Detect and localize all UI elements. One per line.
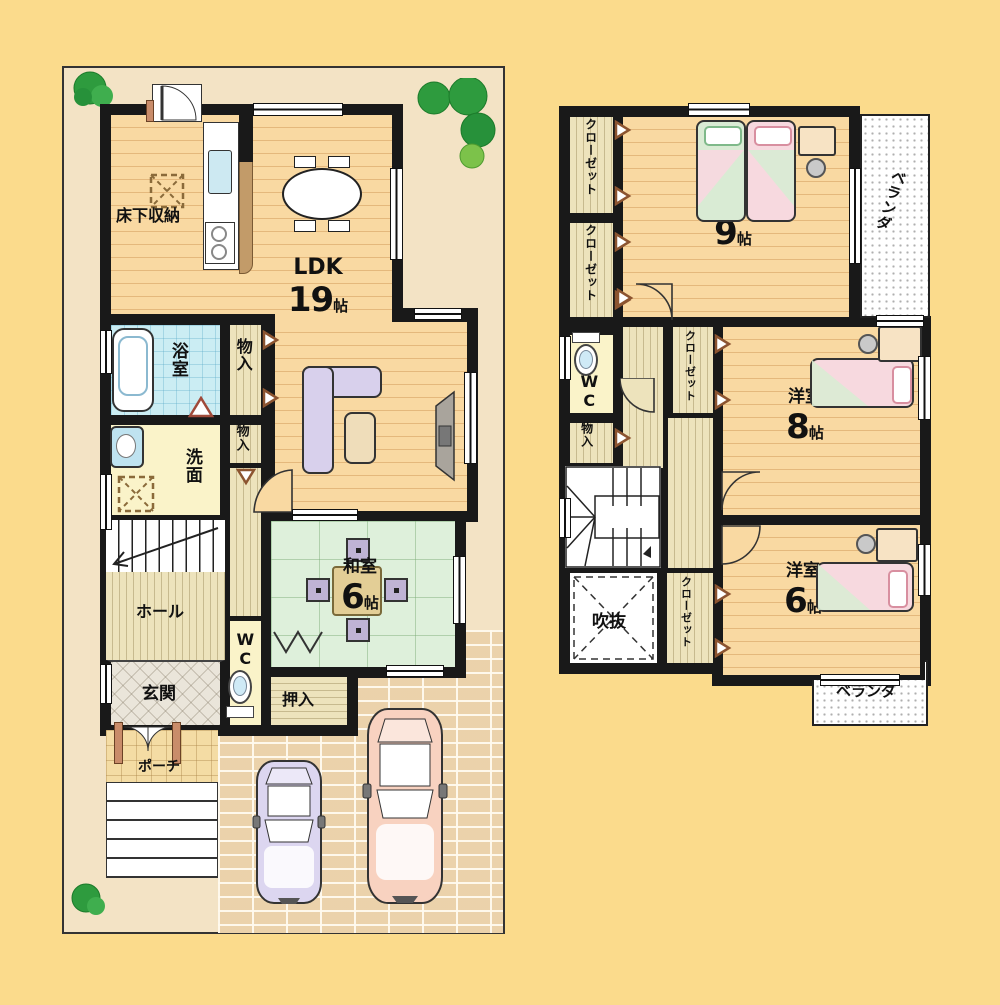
- label-closet-c: クローゼット: [684, 330, 696, 402]
- desk-chair: [806, 158, 826, 178]
- label-storage-2f: 物入: [580, 422, 593, 448]
- label-bath: 浴室: [168, 342, 186, 378]
- floor-storage-hatch-icon: [148, 172, 186, 210]
- pillow: [892, 366, 912, 404]
- window: [100, 664, 112, 704]
- desk: [878, 326, 922, 362]
- dining-chair: [294, 220, 316, 232]
- coffee-table: [344, 412, 376, 464]
- label-hall: ホール: [136, 604, 184, 621]
- pillow: [754, 126, 792, 146]
- bedroom9-door-icon: [634, 282, 674, 322]
- window: [559, 498, 571, 538]
- folding-door-icon: [614, 120, 632, 140]
- tree-cluster-top-right-icon: [412, 78, 508, 170]
- window: [453, 556, 466, 624]
- floorplan-canvas: 床下収納 LDK 19帖 浴室 物入 物入 洗面 ホール 玄関 ポーチ WC: [0, 0, 1000, 1005]
- porch-door-icon: [123, 726, 173, 754]
- window: [100, 330, 112, 374]
- window: [292, 509, 358, 521]
- dining-table: [282, 168, 362, 220]
- folding-door-icon: [262, 388, 280, 408]
- ldk-door-arc-icon: [252, 468, 294, 514]
- porch-post-right: [172, 722, 181, 764]
- floor-cushion: [346, 618, 370, 642]
- pillow: [704, 126, 742, 146]
- desk: [798, 126, 836, 156]
- label-ldk: LDK 19帖: [268, 255, 368, 320]
- car-large: [362, 706, 448, 906]
- window: [414, 308, 462, 320]
- window: [918, 544, 931, 596]
- label-storage-a: 物入: [234, 338, 251, 372]
- bedroom6-door-icon: [720, 524, 762, 566]
- dining-chair: [294, 156, 316, 168]
- label-closet-d: クローゼット: [680, 576, 692, 648]
- folding-door-icon: [714, 638, 732, 658]
- bathtub-inner: [118, 336, 148, 396]
- window: [688, 103, 750, 116]
- window: [918, 356, 931, 420]
- window: [386, 665, 444, 677]
- folding-door-icon: [714, 390, 732, 410]
- blanket-fold-icon: [812, 360, 882, 406]
- window: [390, 168, 403, 260]
- stairs-2f-icon: [565, 466, 661, 568]
- door-jamb: [146, 100, 154, 122]
- folding-door-icon: [714, 584, 732, 604]
- tree-bottom-left-icon: [66, 878, 112, 924]
- folding-door-icon: [614, 232, 632, 252]
- folding-door-icon: [614, 186, 632, 206]
- window: [464, 372, 477, 464]
- desk-chair: [858, 334, 878, 354]
- tv-icon: [430, 390, 456, 482]
- washroom-hatch-icon: [116, 474, 156, 514]
- sofa: [302, 366, 334, 474]
- back-door-arc-icon: [152, 84, 202, 122]
- label-closet-a: クローゼット: [584, 118, 597, 196]
- dining-chair: [328, 220, 350, 232]
- pillow: [888, 570, 908, 608]
- porch-post-left: [114, 722, 123, 764]
- label-closet-b: クローゼット: [584, 224, 597, 302]
- window: [253, 103, 343, 116]
- label-porch: ポーチ: [138, 760, 180, 775]
- kitchen-wall-stub: [239, 110, 253, 162]
- blanket-fold-icon: [748, 150, 794, 220]
- desk-chair: [856, 534, 876, 554]
- washitsu-fold-door-icon: [272, 630, 324, 656]
- label-floor-storage: 床下収納: [116, 208, 180, 225]
- kitchen-sink: [208, 150, 232, 194]
- toilet-2f-tank: [572, 332, 600, 343]
- window: [876, 315, 924, 327]
- blanket-fold-icon: [698, 150, 744, 220]
- toilet-1f-bowl: [233, 676, 247, 696]
- desk: [876, 528, 918, 562]
- hallway-2f-lower: [668, 418, 718, 568]
- car-small: [252, 758, 326, 906]
- folding-door-icon: [614, 428, 632, 448]
- folding-door-icon: [262, 330, 280, 350]
- wc2f-door-icon: [620, 378, 656, 414]
- window: [849, 168, 861, 264]
- folding-door-icon: [236, 468, 256, 486]
- washstand-basin: [116, 434, 136, 458]
- blanket-fold-icon: [818, 564, 884, 610]
- window: [820, 674, 900, 686]
- kitchen-stove-burners-icon: [205, 222, 235, 264]
- folding-door-icon: [616, 288, 634, 308]
- bath-fold-door-icon: [188, 396, 214, 418]
- window: [559, 336, 571, 380]
- entrance-steps: [106, 782, 218, 878]
- label-washroom: 洗面: [182, 448, 200, 484]
- dining-chair: [328, 156, 350, 168]
- label-wc-1f: WC: [236, 630, 253, 668]
- folding-door-icon: [714, 334, 732, 354]
- label-japanese-room: 和室 6帖: [320, 552, 400, 617]
- toilet-1f-tank: [226, 706, 254, 718]
- bedroom8-door-icon: [720, 470, 762, 512]
- label-veranda-bottom: ベランダ: [836, 684, 896, 700]
- label-storage-b: 物入: [234, 424, 248, 452]
- label-oshiire: 押入: [282, 692, 314, 709]
- label-wc-2f: WC: [580, 372, 597, 410]
- label-void: 吹抜: [592, 614, 626, 632]
- window: [100, 474, 112, 530]
- toilet-2f-bowl: [579, 350, 593, 369]
- label-entrance: 玄関: [142, 686, 176, 704]
- stairs-1f-arrow-icon: [106, 520, 225, 572]
